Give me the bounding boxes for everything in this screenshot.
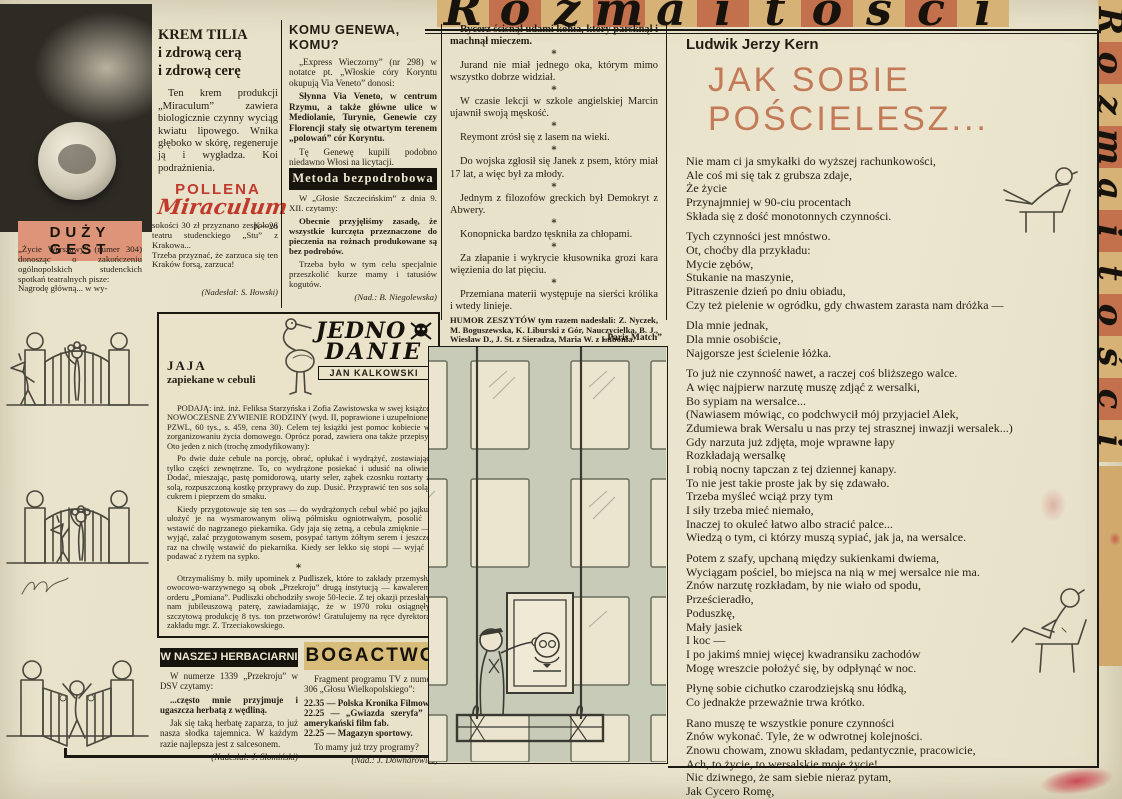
banner-letter-block: t — [749, 0, 801, 27]
banner-letter: z — [554, 0, 580, 27]
banner-letter-block: o — [801, 0, 853, 27]
advert-krem-tilia: KREM TILIA i zdrową cerą i zdrową cerę T… — [158, 26, 278, 231]
banner-letter-block: o — [489, 0, 541, 27]
banner-letter-block: i — [1098, 420, 1122, 462]
separator-star: * — [167, 565, 430, 573]
poem-title: JAK SOBIE POŚCIELESZ... — [708, 61, 1086, 139]
joke: Konopnicka bardzo tęskniła za chłopami. — [450, 229, 658, 241]
banner-letter-block: R — [1098, 0, 1122, 42]
poem-article: Ludwik Jerzy Kern JAK SOBIE POŚCIELESZ..… — [686, 36, 1086, 799]
jedno-danie-logo: JEDNO DANIE JAN KALKOWSKI — [318, 318, 430, 380]
article-komu-genewa: KOMU GENEWA, KOMU? „Express Wieczorny” (… — [289, 22, 437, 181]
separator-star: * — [450, 147, 658, 155]
joke: Przemiana materii występuje na sierści k… — [450, 289, 658, 313]
banner-letter-block: i — [1098, 210, 1122, 252]
paragraph: Słynna Via Veneto, w centrum Rzymu, a ta… — [289, 91, 437, 143]
poem-author: Ludwik Jerzy Kern — [686, 36, 1086, 53]
poem-stanza: Dla mnie jednak, Dla mnie osobiście, Naj… — [686, 319, 1086, 360]
poem-stanza: To już nie czynność nawet, a raczej coś … — [686, 367, 1086, 545]
stork-drawing — [271, 316, 321, 396]
article-metoda: Metoda bezpodrobowa W „Głosie Szczecińsk… — [289, 168, 437, 302]
advert-body: Ten krem produkcji „Miraculum” zawiera b… — [158, 88, 278, 175]
paragraph: Obecnie przyjęliśmy zasadę, że wszystkie… — [289, 217, 437, 257]
joke: Jurand nie miał jednego oka, którym mimo… — [450, 60, 658, 84]
paragraph: Fragment programu TV z numeru 306 „Głosu… — [304, 674, 438, 695]
article-heading: KOMU GENEWA, KOMU? — [289, 22, 437, 52]
advert-title: KREM TILIA i zdrową cerą i zdrową cerę — [158, 26, 278, 80]
logo-text-author: JAN KALKOWSKI — [318, 366, 430, 380]
banner-letter-block: o — [1098, 294, 1122, 336]
banner-letter: a — [656, 0, 686, 27]
paragraph: To mamy już trzy programy? — [304, 742, 438, 752]
paragraph: PODAJĄ: inż. inż. Feliksa Starzyńska i Z… — [167, 404, 430, 451]
banner-letter-block: c — [905, 0, 957, 27]
article-bogactwo: BOGACTWO Fragment programu TV z numeru 3… — [304, 642, 438, 765]
tv-program-listing: 22.35 — Polska Kronika Filmowa. 22.25 — … — [304, 698, 438, 739]
logo-text-danie: DANIE — [318, 339, 430, 365]
separator-star: * — [450, 280, 658, 288]
paragraph: Tę Genewę kupili podobno niedawno Włosi … — [289, 147, 437, 168]
article-jedno-danie: JEDNO DANIE JAN KALKOWSKI JAJA zapiek — [157, 312, 440, 638]
poem-stanza: Płynę sobie cichutko czarodziejską snu ł… — [686, 682, 1086, 709]
banner-letter-block: ś — [853, 0, 905, 27]
banner-letter-block: m — [1098, 126, 1122, 168]
joke: Za złapanie i wykrycie kłusownika grozi … — [450, 253, 658, 277]
banner-letter-block: z — [541, 0, 593, 27]
joke: Jednym z filozofów greckich był Demokryt… — [450, 193, 658, 217]
banner-letter: i — [1098, 435, 1122, 448]
banner-letter-block: i — [957, 0, 1009, 27]
banner-letter: m — [595, 0, 644, 27]
banner-letter: c — [917, 0, 945, 27]
banner-letter: o — [812, 0, 843, 27]
separator-star: * — [450, 123, 658, 131]
paragraph: Trzeba było w tym celu specjalnie przesz… — [289, 260, 437, 290]
banner-letter: o — [500, 0, 531, 27]
article-heading: W NASZEJ HERBACIARNI — [160, 648, 298, 667]
banner-letter: t — [1098, 265, 1122, 281]
banner-letter: z — [1098, 95, 1122, 114]
reclining-man-drawing — [990, 160, 1082, 238]
paragraph: W „Głosie Szczecińskim” z dnia 9. XII. c… — [289, 194, 437, 214]
banner-letter-block: o — [1098, 42, 1122, 84]
separator-star: * — [450, 87, 658, 95]
column-1: „Życie Warszawy” (numer 304) donosząc o … — [18, 245, 142, 294]
separator-star: * — [450, 184, 658, 192]
recipe-subtitle: zapiekane w cebuli — [167, 374, 256, 386]
credit: (Nadesłał: S. Iłowski) — [152, 287, 278, 297]
credit: (Nad.: B. Niegolewska) — [289, 292, 437, 302]
banner-letter: R — [444, 0, 482, 27]
paragraph: Otrzymaliśmy b. miły upominek z Pudlisze… — [167, 574, 430, 631]
column-2: sokości 30 zł przyznano zespołowi teatru… — [152, 221, 278, 270]
banner-letter: i — [714, 0, 731, 27]
article-heading: Metoda bezpodrobowa — [289, 168, 437, 190]
masthead-banner: R o z m a i t o ś c i — [437, 0, 1009, 27]
side-tan-block — [1098, 466, 1122, 666]
masthead-side-banner: R o z m a i t o ś c i — [1098, 0, 1122, 466]
advert-photo — [0, 4, 152, 232]
joke: Reymont zrósł się z lasem na wieki. — [450, 132, 658, 144]
banner-letter-block: t — [1098, 252, 1122, 294]
humor-column: Rycerz ścisnął udami konia, który parskn… — [450, 24, 658, 355]
window-washer-cartoon — [428, 346, 668, 764]
cartoon-caption: „Paris Match” — [520, 333, 662, 343]
paragraph: Jak się taką herbatę zaparza, to już nas… — [160, 718, 298, 749]
paragraph: Po dwie duże cebule na porcję, obrać, op… — [167, 454, 430, 501]
banner-letter-block: z — [1098, 84, 1122, 126]
separator-star: * — [450, 51, 658, 59]
banner-letter: m — [1098, 129, 1122, 165]
banner-letter: R — [1098, 7, 1122, 35]
sitting-man-drawing — [1002, 580, 1098, 680]
signature-scribble — [20, 576, 70, 598]
jar-label — [58, 144, 96, 174]
joke: Rycerz ścisnął udami konia, który parskn… — [450, 24, 658, 48]
separator-star: * — [450, 244, 658, 252]
banner-letter: t — [764, 0, 785, 27]
paragraph: ...często mnie przyjmuje i ugaszcza herb… — [160, 695, 298, 716]
paragraph: „Express Wieczorny” (nr 298) w notatce p… — [289, 57, 437, 88]
banner-letter: i — [974, 0, 991, 27]
banner-letter-block: m — [593, 0, 645, 27]
red-dot — [1109, 532, 1121, 546]
banner-letter: a — [1098, 178, 1122, 200]
paragraph: Kiedy przygotowuje się ten sos — do wydr… — [167, 505, 430, 562]
banner-letter: ś — [1098, 347, 1122, 366]
joke: W czasie lekcji w szkole angielskiej Mar… — [450, 96, 658, 120]
gate-cartoon-panel-1 — [5, 310, 150, 430]
recipe-title: JAJA — [167, 358, 256, 374]
banner-letter-block: i — [697, 0, 749, 27]
miraculum-logo: Miraculum — [156, 194, 280, 219]
banner-letter-block: R — [437, 0, 489, 27]
separator-star: * — [450, 220, 658, 228]
banner-letter: o — [1098, 52, 1122, 75]
banner-letter-block: c — [1098, 378, 1122, 420]
banner-letter: i — [1098, 225, 1122, 238]
banner-letter: ś — [866, 0, 892, 27]
poem-stanza: Tych czynności jest mnóstwo. Ot, choćby … — [686, 230, 1086, 312]
magazine-page: R o z m a i t o ś c i R o z m a i t o ś … — [0, 0, 1122, 799]
banner-letter-block: a — [1098, 168, 1122, 210]
article-heading: BOGACTWO — [304, 642, 438, 670]
banner-letter: c — [1098, 389, 1122, 410]
banner-letter: o — [1098, 304, 1122, 327]
joke: Do wojska zgłosił się Janek z psem, któr… — [450, 156, 658, 180]
article-duzy-gest: DUŻY GEST „Życie Warszawy” (numer 304) d… — [18, 221, 278, 261]
banner-letter-block: a — [645, 0, 697, 27]
gate-cartoon-panel-3 — [5, 636, 150, 761]
gate-cartoon-panel-2 — [5, 468, 150, 588]
paragraph: W numerze 1339 „Przekroju” w DSV czytamy… — [160, 671, 298, 692]
banner-letter-block: ś — [1098, 336, 1122, 378]
poem-stanza: Rano muszę te wszystkie ponure czynności… — [686, 717, 1086, 799]
skull-cutlery-icon — [410, 321, 432, 341]
pink-stain — [1040, 488, 1066, 522]
article-herbaciarnia: W NASZEJ HERBACIARNI W numerze 1339 „Prz… — [160, 648, 298, 762]
